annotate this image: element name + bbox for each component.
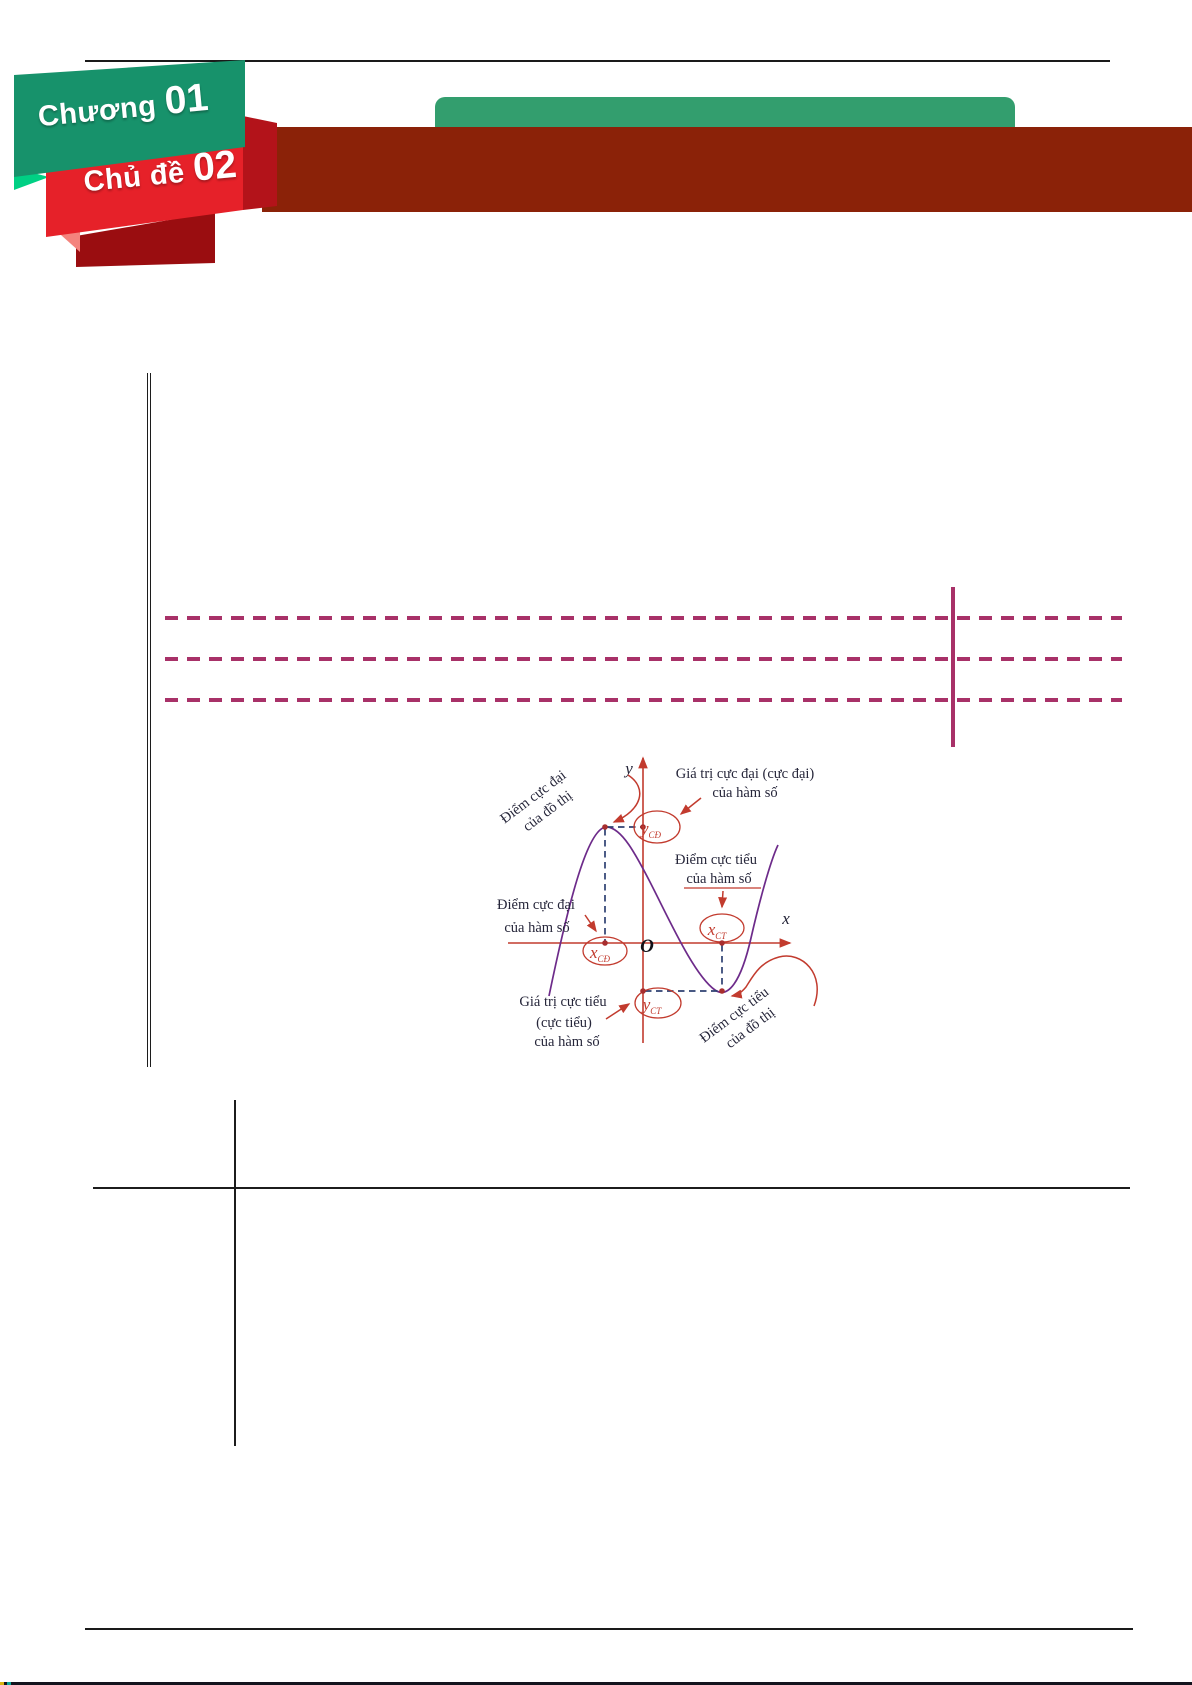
section-header-band: [262, 127, 1192, 212]
content-left-rule: [147, 373, 151, 1067]
note-max-point-fn-1: Điểm cực đại: [497, 897, 575, 913]
note-min-point-graph: Điểm cực tiểu của đồ thị: [697, 984, 784, 1062]
label-y-cd: yCĐ: [639, 819, 662, 840]
x-axis-label: x: [781, 909, 790, 928]
note-max-point-graph: Điểm cực đại của đồ thị: [497, 767, 581, 843]
origin-label: O: [640, 936, 654, 957]
footer-rule: [85, 1628, 1133, 1630]
note-min-value-2: (cực tiểu): [536, 1015, 592, 1031]
notes-horizontal-rule: [93, 1187, 1130, 1189]
dotted-answer-line-2: [165, 657, 1122, 661]
label-x-ct: xCT: [707, 920, 728, 941]
chapter-number: 01: [163, 76, 210, 124]
note-min-point-fn-1: Điểm cực tiểu: [675, 852, 757, 868]
dotted-answer-line-3: [165, 698, 1122, 702]
topic-number: 02: [191, 143, 238, 191]
pointer-arrows: [585, 775, 817, 1019]
extrema-diagram: y x O xCĐ yCĐ xCT yCT Gi: [455, 735, 835, 1075]
topic-label: Chủ đề: [82, 157, 186, 200]
note-max-value-1: Giá trị cực đại (cực đại): [676, 766, 815, 782]
note-min-value-1: Giá trị cực tiểu: [519, 994, 606, 1010]
notes-vertical-rule: [234, 1100, 236, 1446]
label-x-cd: xCĐ: [589, 943, 611, 964]
label-y-ct: yCT: [641, 995, 663, 1016]
document-page: Chương 01 Chủ đề 02 y x O: [0, 0, 1192, 1685]
chapter-label: Chương: [37, 90, 158, 134]
note-max-point-fn-2: của hàm số: [504, 920, 570, 936]
note-min-value-3: của hàm số: [534, 1034, 600, 1050]
note-min-point-fn-2: của hàm số: [686, 871, 752, 887]
dotted-answer-line-1: [165, 616, 1122, 620]
note-max-value-2: của hàm số: [712, 785, 778, 801]
answer-column-divider: [951, 587, 955, 747]
